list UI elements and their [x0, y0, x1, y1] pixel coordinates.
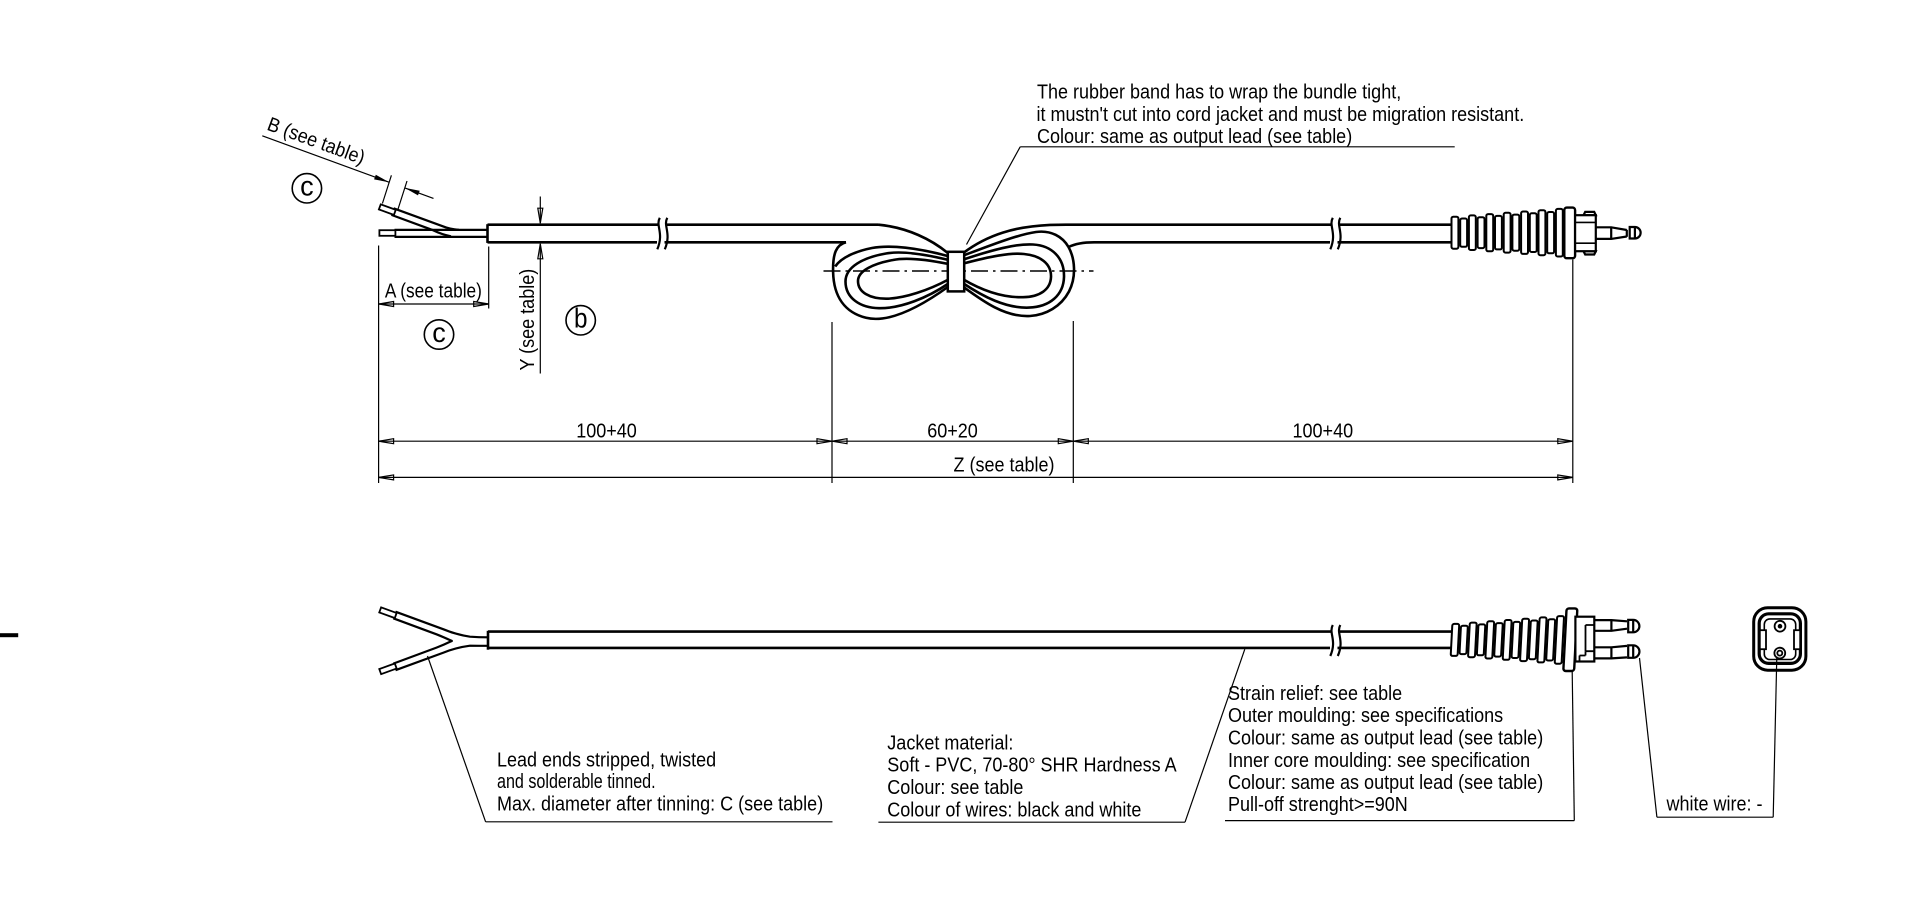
svg-text:Outer moulding: see specificat: Outer moulding: see specifications: [1228, 705, 1503, 727]
svg-text:Colour: same as output lead (s: Colour: same as output lead (see table): [1037, 126, 1352, 148]
svg-text:Inner core moulding: see speci: Inner core moulding: see specification: [1228, 750, 1530, 772]
svg-text:100+40: 100+40: [1293, 421, 1354, 443]
svg-text:and solderable tinned.: and solderable tinned.: [497, 771, 656, 793]
svg-text:Z (see table): Z (see table): [954, 454, 1055, 476]
svg-text:Max. diameter after tinning: C: Max. diameter after tinning: C (see tabl…: [497, 793, 823, 815]
svg-text:Colour of wires: black and whi: Colour of wires: black and white: [887, 799, 1141, 821]
svg-text:Colour: same as output lead (s: Colour: same as output lead (see table): [1228, 772, 1543, 794]
svg-text:b: b: [574, 303, 588, 334]
svg-text:Colour: same as output lead (s: Colour: same as output lead (see table): [1228, 727, 1543, 749]
svg-text:A (see table): A (see table): [385, 281, 482, 303]
svg-text:c: c: [300, 171, 314, 202]
svg-text:Soft - PVC, 70-80° SHR Hardnes: Soft - PVC, 70-80° SHR Hardness A: [887, 755, 1177, 777]
svg-text:Colour: see table: Colour: see table: [887, 777, 1023, 799]
svg-text:white wire: -: white wire: -: [1666, 794, 1763, 816]
svg-text:Pull-off strenght>=90N: Pull-off strenght>=90N: [1228, 794, 1408, 816]
svg-text:Strain relief: see table: Strain relief: see table: [1228, 683, 1402, 705]
svg-text:100+40: 100+40: [576, 421, 637, 443]
svg-text:60+20: 60+20: [927, 421, 978, 443]
svg-text:it mustn't cut into cord jacke: it mustn't cut into cord jacket and must…: [1037, 104, 1525, 126]
svg-text:Lead ends stripped, twisted: Lead ends stripped, twisted: [497, 750, 716, 772]
svg-text:Jacket material:: Jacket material:: [887, 732, 1013, 754]
svg-text:Y (see table): Y (see table): [517, 269, 539, 371]
svg-text:c: c: [432, 317, 446, 348]
svg-text:The rubber band has to wrap th: The rubber band has to wrap the bundle t…: [1037, 81, 1401, 103]
